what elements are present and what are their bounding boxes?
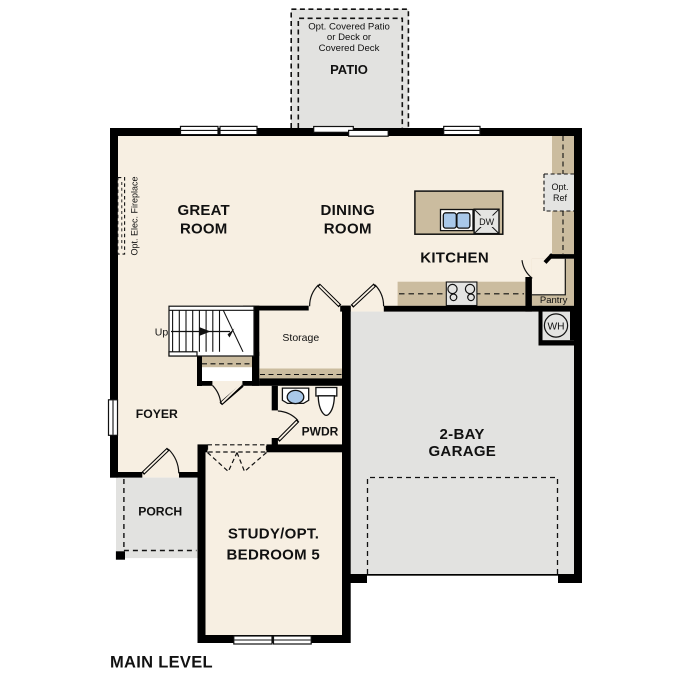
svg-text:Opt. Elec. Fireplace: Opt. Elec. Fireplace [130,176,140,255]
svg-text:Opt.: Opt. [551,182,568,192]
svg-text:or Deck or: or Deck or [327,32,372,43]
svg-text:FOYER: FOYER [136,407,178,421]
svg-text:GARAGE: GARAGE [428,443,496,460]
svg-text:PATIO: PATIO [330,62,368,77]
svg-text:WH: WH [548,321,565,332]
svg-text:Pantry: Pantry [540,295,568,306]
svg-text:Storage: Storage [282,332,319,344]
svg-text:Ref: Ref [553,193,568,203]
svg-text:GREAT: GREAT [178,202,230,219]
svg-text:DW: DW [479,217,494,227]
svg-text:Opt. Covered Patio: Opt. Covered Patio [308,21,390,32]
svg-text:BEDROOM 5: BEDROOM 5 [227,547,321,564]
svg-text:ROOM: ROOM [324,220,372,237]
svg-text:KITCHEN: KITCHEN [420,249,489,266]
svg-text:STUDY/OPT.: STUDY/OPT. [228,526,319,543]
svg-text:ROOM: ROOM [180,220,227,237]
svg-text:MAIN LEVEL: MAIN LEVEL [110,654,213,672]
svg-text:PWDR: PWDR [302,425,339,439]
svg-text:Up: Up [155,326,169,338]
svg-text:Covered Deck: Covered Deck [319,43,380,54]
svg-text:DINING: DINING [320,202,375,219]
svg-text:PORCH: PORCH [138,505,182,519]
svg-text:2-BAY: 2-BAY [440,426,485,443]
